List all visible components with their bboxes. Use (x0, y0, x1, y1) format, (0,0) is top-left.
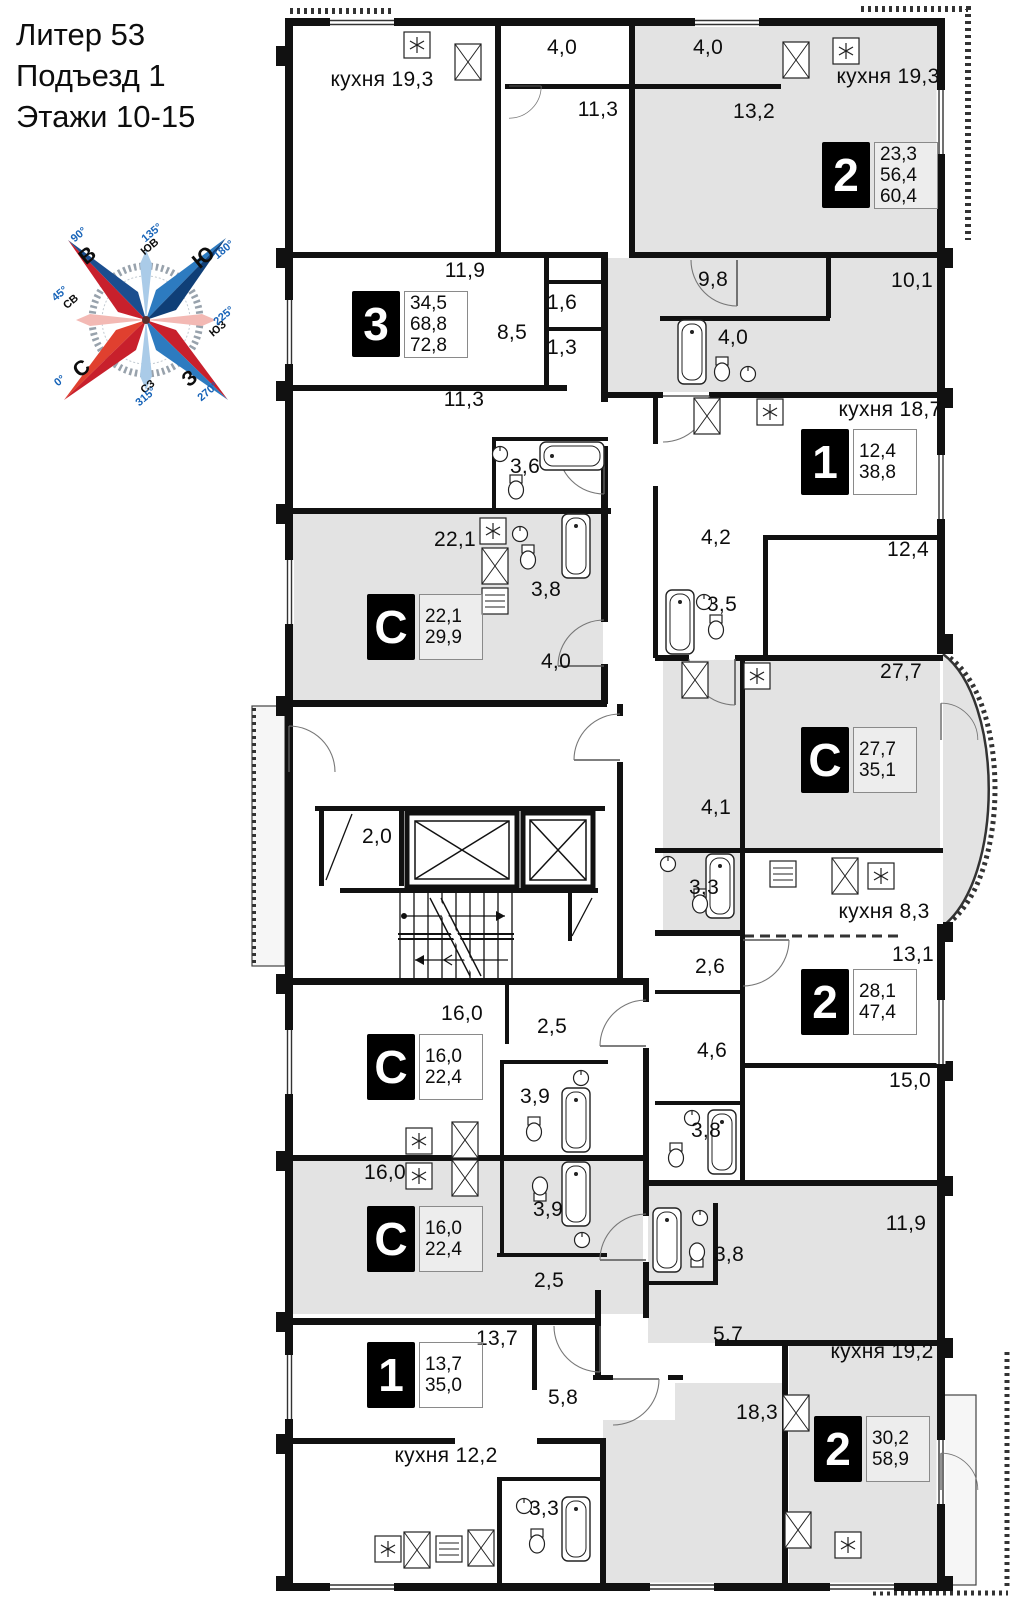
apartment-area-value: 23,3 (880, 144, 932, 165)
apartment-area-value: 60,4 (880, 186, 932, 207)
apartment-type: 2 (801, 969, 849, 1035)
room-area-label: 2,0 (362, 825, 392, 849)
room-area-label: 22,1 (434, 528, 476, 552)
apartment-type: 2 (822, 142, 870, 208)
room-area-label: 12,4 (887, 538, 929, 562)
room-area-label: 4,0 (693, 36, 723, 60)
apartment-area-value: 28,1 (859, 981, 911, 1002)
room-area-label: 18,3 (736, 1401, 778, 1425)
room-area-label: 11,3 (578, 98, 619, 122)
apartment-area-value: 16,0 (425, 1046, 477, 1067)
room-area-label: 1,3 (547, 336, 577, 360)
room-area-label: 13,1 (892, 943, 934, 967)
room-area-label: 3,8 (691, 1119, 721, 1143)
bathroom-fixtures (493, 320, 756, 1561)
apartment-areas: 28,147,4 (853, 969, 917, 1035)
room-area-label: 11,3 (444, 388, 485, 412)
apartment-areas: 27,735,1 (853, 727, 917, 793)
apartment-area-value: 13,7 (425, 1354, 477, 1375)
apartment-area-value: 27,7 (859, 739, 911, 760)
room-area-label: 4,1 (701, 796, 731, 820)
room-area-label: 3,9 (533, 1198, 563, 1222)
room-area-label: 4,0 (541, 650, 571, 674)
apartment-area-value: 22,4 (425, 1239, 477, 1260)
room-area-label: 2,5 (534, 1269, 564, 1293)
room-area-label: 4,0 (718, 326, 748, 350)
apartment-area-value: 12,4 (859, 441, 911, 462)
apartment-badge: 230,258,9 (814, 1416, 930, 1482)
room-area-label: 3,5 (707, 593, 737, 617)
apartment-areas: 13,735,0 (419, 1342, 483, 1408)
floor-plan-page: Литер 53 Подъезд 1 Этажи 10-15 (0, 0, 1018, 1598)
room-area-label: 11,9 (445, 259, 486, 283)
room-area-label: 11,9 (886, 1212, 927, 1236)
room-area-label: 8,5 (497, 321, 527, 345)
apartment-type: 2 (814, 1416, 862, 1482)
room-area-label: 3,3 (529, 1497, 559, 1521)
apartment-type: 3 (352, 291, 400, 357)
room-area-label: 13,2 (733, 100, 775, 124)
apartment-area-value: 16,0 (425, 1218, 477, 1239)
apartment-area-value: 30,2 (872, 1428, 924, 1449)
room-area-label: 4,0 (547, 36, 577, 60)
apartment-badge: 334,568,872,8 (352, 291, 468, 358)
room-area-label: кухня 12,2 (394, 1444, 497, 1468)
apartment-type: 1 (801, 429, 849, 495)
room-area-label: 3,3 (689, 876, 719, 900)
apartment-areas: 30,258,9 (866, 1416, 930, 1482)
apartment-area-value: 47,4 (859, 1002, 911, 1023)
apartment-badge: 228,147,4 (801, 969, 917, 1035)
apartment-badge: 112,438,8 (801, 429, 917, 495)
apartment-areas: 16,022,4 (419, 1206, 483, 1272)
room-area-label: кухня 19,3 (330, 68, 433, 92)
room-area-label: 3,8 (714, 1243, 744, 1267)
apartment-area-value: 22,1 (425, 606, 477, 627)
apartment-type: С (367, 594, 415, 660)
apartment-badge: С16,022,4 (367, 1206, 483, 1272)
apartment-areas: 22,129,9 (419, 594, 483, 660)
apartment-area-value: 34,5 (410, 293, 462, 314)
room-area-label: кухня 19,2 (830, 1340, 933, 1364)
room-area-label: 27,7 (880, 660, 922, 684)
room-area-label: кухня 8,3 (838, 900, 929, 924)
room-area-label: 10,1 (891, 269, 933, 293)
room-area-label: 2,5 (537, 1015, 567, 1039)
apartment-badge: С27,735,1 (801, 727, 917, 793)
apartment-areas: 34,568,872,8 (404, 291, 468, 358)
apartment-type: 1 (367, 1342, 415, 1408)
room-area-label: 9,8 (698, 268, 728, 292)
apartment-area-value: 35,1 (859, 760, 911, 781)
room-area-label: 15,0 (889, 1069, 931, 1093)
room-area-label: 1,6 (547, 291, 577, 315)
apartment-area-value: 56,4 (880, 165, 932, 186)
room-area-label: 3,8 (531, 578, 561, 602)
apartment-badge: С16,022,4 (367, 1034, 483, 1100)
room-area-label: 16,0 (441, 1002, 483, 1026)
apartment-area-value: 35,0 (425, 1375, 477, 1396)
apartment-area-value: 29,9 (425, 627, 477, 648)
apartment-type: С (801, 727, 849, 793)
room-area-label: 16,0 (364, 1161, 406, 1185)
room-area-label: 5,7 (713, 1323, 743, 1347)
apartment-areas: 23,356,460,4 (874, 142, 938, 209)
room-area-label: 2,6 (695, 955, 725, 979)
stairs-icon (398, 893, 514, 978)
apartment-area-value: 68,8 (410, 314, 462, 335)
apartment-area-value: 38,8 (859, 462, 911, 483)
apartment-area-value: 72,8 (410, 335, 462, 356)
room-area-label: кухня 19,3 (836, 65, 939, 89)
apartment-area-value: 58,9 (872, 1449, 924, 1470)
apartment-badge: 113,735,0 (367, 1342, 483, 1408)
apartment-badge: С22,129,9 (367, 594, 483, 660)
apartment-areas: 16,022,4 (419, 1034, 483, 1100)
room-area-label: 5,8 (548, 1386, 578, 1410)
room-area-label: 3,9 (520, 1085, 550, 1109)
apartment-type: С (367, 1206, 415, 1272)
room-area-label: 4,6 (697, 1039, 727, 1063)
apartment-type: С (367, 1034, 415, 1100)
room-area-label: 3,6 (510, 455, 540, 479)
apartment-area-value: 22,4 (425, 1067, 477, 1088)
room-area-label: кухня 18,7 (838, 398, 941, 422)
apartment-areas: 12,438,8 (853, 429, 917, 495)
apartment-badge: 223,356,460,4 (822, 142, 938, 209)
room-area-label: 4,2 (701, 526, 731, 550)
